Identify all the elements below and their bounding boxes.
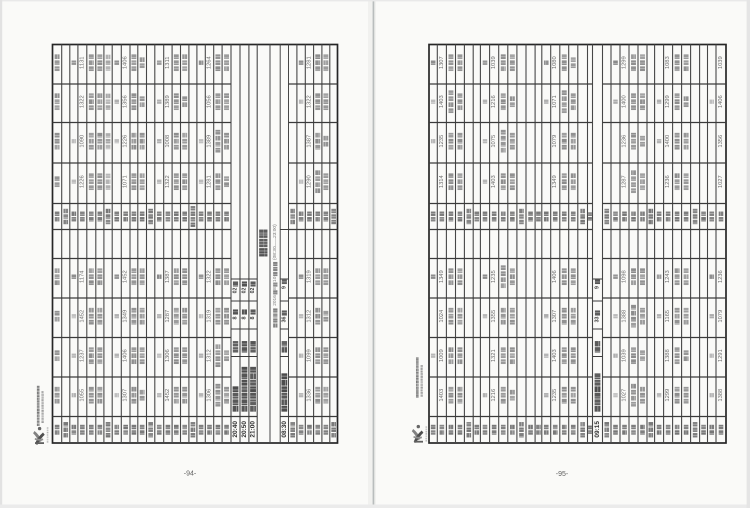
svg-text:1098: 1098 [622, 270, 628, 283]
svg-text:1287: 1287 [622, 175, 628, 188]
svg-text:1388: 1388 [718, 389, 724, 402]
svg-text:1075: 1075 [491, 135, 497, 148]
svg-text:8: 8 [272, 287, 278, 290]
svg-text:1235: 1235 [439, 135, 445, 148]
svg-text:1090: 1090 [79, 135, 85, 148]
svg-text:1406: 1406 [718, 95, 724, 108]
svg-text:1039: 1039 [622, 349, 628, 362]
svg-text:10: 10 [272, 276, 278, 282]
svg-text:1400: 1400 [622, 95, 628, 108]
svg-text:1306: 1306 [165, 349, 171, 362]
svg-text:9: 9 [281, 286, 287, 289]
svg-text:1403: 1403 [439, 95, 445, 108]
svg-text:1312: 1312 [207, 349, 213, 362]
svg-text:1264: 1264 [207, 55, 213, 69]
svg-text:-95-: -95- [556, 471, 569, 478]
svg-text:20:50: 20:50 [241, 421, 248, 438]
svg-text:1024: 1024 [439, 309, 445, 323]
svg-text:1319: 1319 [306, 270, 312, 283]
svg-text:9: 9 [595, 286, 601, 289]
svg-text:1388: 1388 [622, 310, 628, 323]
svg-text:23:00): 23:00) [272, 224, 278, 238]
svg-text:1237: 1237 [79, 349, 85, 362]
svg-text:1236: 1236 [622, 135, 628, 148]
svg-text:1452: 1452 [165, 389, 171, 402]
svg-text:1287: 1287 [165, 310, 171, 323]
svg-text:1027: 1027 [622, 389, 628, 402]
svg-text:1299: 1299 [665, 389, 671, 402]
svg-text:1080: 1080 [552, 56, 558, 69]
svg-text:1312: 1312 [306, 310, 312, 323]
svg-text:1306: 1306 [207, 389, 213, 402]
svg-text:1079: 1079 [552, 135, 558, 148]
svg-text:2016: 2016 [272, 295, 278, 306]
svg-text:1406: 1406 [123, 56, 129, 69]
svg-text:1336: 1336 [306, 389, 312, 402]
svg-text:1314: 1314 [439, 174, 445, 188]
svg-text:1321: 1321 [491, 349, 497, 362]
svg-text:1349: 1349 [123, 310, 129, 323]
svg-text:08:30: 08:30 [281, 421, 288, 438]
svg-text:1165: 1165 [665, 310, 671, 322]
svg-text:1243: 1243 [665, 270, 671, 283]
svg-text:(08:30: (08:30 [272, 246, 278, 260]
svg-text:1226: 1226 [79, 175, 85, 188]
svg-text:09:15: 09:15 [594, 421, 601, 438]
svg-text:1083: 1083 [665, 56, 671, 69]
svg-text:1008: 1008 [165, 135, 171, 148]
svg-text:1281: 1281 [306, 56, 312, 69]
svg-text:1322: 1322 [207, 270, 213, 283]
svg-text:1349: 1349 [552, 175, 558, 188]
svg-text:8: 8 [250, 317, 256, 320]
svg-text:1356: 1356 [123, 95, 129, 108]
svg-text:1389: 1389 [207, 135, 213, 148]
svg-text:1356: 1356 [718, 135, 724, 148]
svg-text:1039: 1039 [491, 56, 497, 69]
svg-text:1216: 1216 [491, 95, 497, 108]
svg-text:8: 8 [233, 317, 239, 320]
svg-text:36: 36 [281, 317, 287, 323]
svg-text:02: 02 [241, 288, 247, 294]
svg-text:1319: 1319 [207, 310, 213, 323]
svg-text:1389: 1389 [165, 95, 171, 108]
svg-text:1174: 1174 [79, 270, 85, 283]
svg-text:1235: 1235 [552, 389, 558, 402]
svg-text:1406: 1406 [552, 270, 558, 283]
svg-text:1388: 1388 [665, 349, 671, 362]
svg-text:1307: 1307 [439, 56, 445, 69]
svg-text:1236: 1236 [665, 175, 671, 188]
svg-text:1236: 1236 [718, 270, 724, 283]
svg-text:1400: 1400 [665, 135, 671, 148]
svg-text:1131: 1131 [79, 56, 85, 68]
svg-text:02: 02 [233, 288, 239, 294]
svg-text:33: 33 [595, 317, 601, 323]
svg-text:1403: 1403 [439, 389, 445, 402]
svg-text:8: 8 [241, 317, 247, 320]
svg-text:1009: 1009 [439, 349, 445, 362]
svg-text:1307: 1307 [552, 310, 558, 323]
svg-text:1452: 1452 [123, 270, 129, 283]
svg-text:1322: 1322 [306, 95, 312, 108]
svg-text:1349: 1349 [439, 270, 445, 283]
svg-text:1322: 1322 [165, 175, 171, 188]
svg-text:1056: 1056 [207, 95, 213, 108]
svg-text:1322: 1322 [79, 95, 85, 108]
svg-text:21:00: 21:00 [250, 421, 257, 438]
svg-text:1291: 1291 [718, 349, 724, 362]
svg-text:1403: 1403 [491, 175, 497, 188]
svg-text:1235: 1235 [491, 270, 497, 283]
svg-text:1071: 1071 [123, 175, 129, 188]
svg-text:1071: 1071 [552, 95, 558, 108]
svg-text:1355: 1355 [491, 310, 497, 323]
svg-text:1299: 1299 [665, 95, 671, 108]
svg-text:1299: 1299 [622, 56, 628, 69]
svg-text:20:40: 20:40 [232, 421, 239, 438]
svg-text:-94-: -94- [184, 471, 197, 478]
svg-text:1307: 1307 [123, 389, 129, 402]
svg-text:1039: 1039 [718, 56, 724, 69]
svg-text:1281: 1281 [207, 175, 213, 188]
svg-text:1226: 1226 [123, 135, 129, 148]
svg-text:1406: 1406 [123, 349, 129, 362]
svg-text:1403: 1403 [552, 349, 558, 362]
svg-text:1099: 1099 [306, 349, 312, 362]
svg-text:1452: 1452 [79, 310, 85, 323]
svg-text:1290: 1290 [306, 175, 312, 188]
svg-text:1027: 1027 [718, 175, 724, 188]
svg-text:1079: 1079 [718, 310, 724, 323]
svg-text:1216: 1216 [491, 389, 497, 402]
svg-text:1387: 1387 [165, 270, 171, 283]
svg-text:1055: 1055 [79, 389, 85, 402]
svg-text:1387: 1387 [306, 135, 312, 148]
svg-text:1311: 1311 [165, 56, 171, 68]
svg-text:02: 02 [250, 288, 256, 294]
